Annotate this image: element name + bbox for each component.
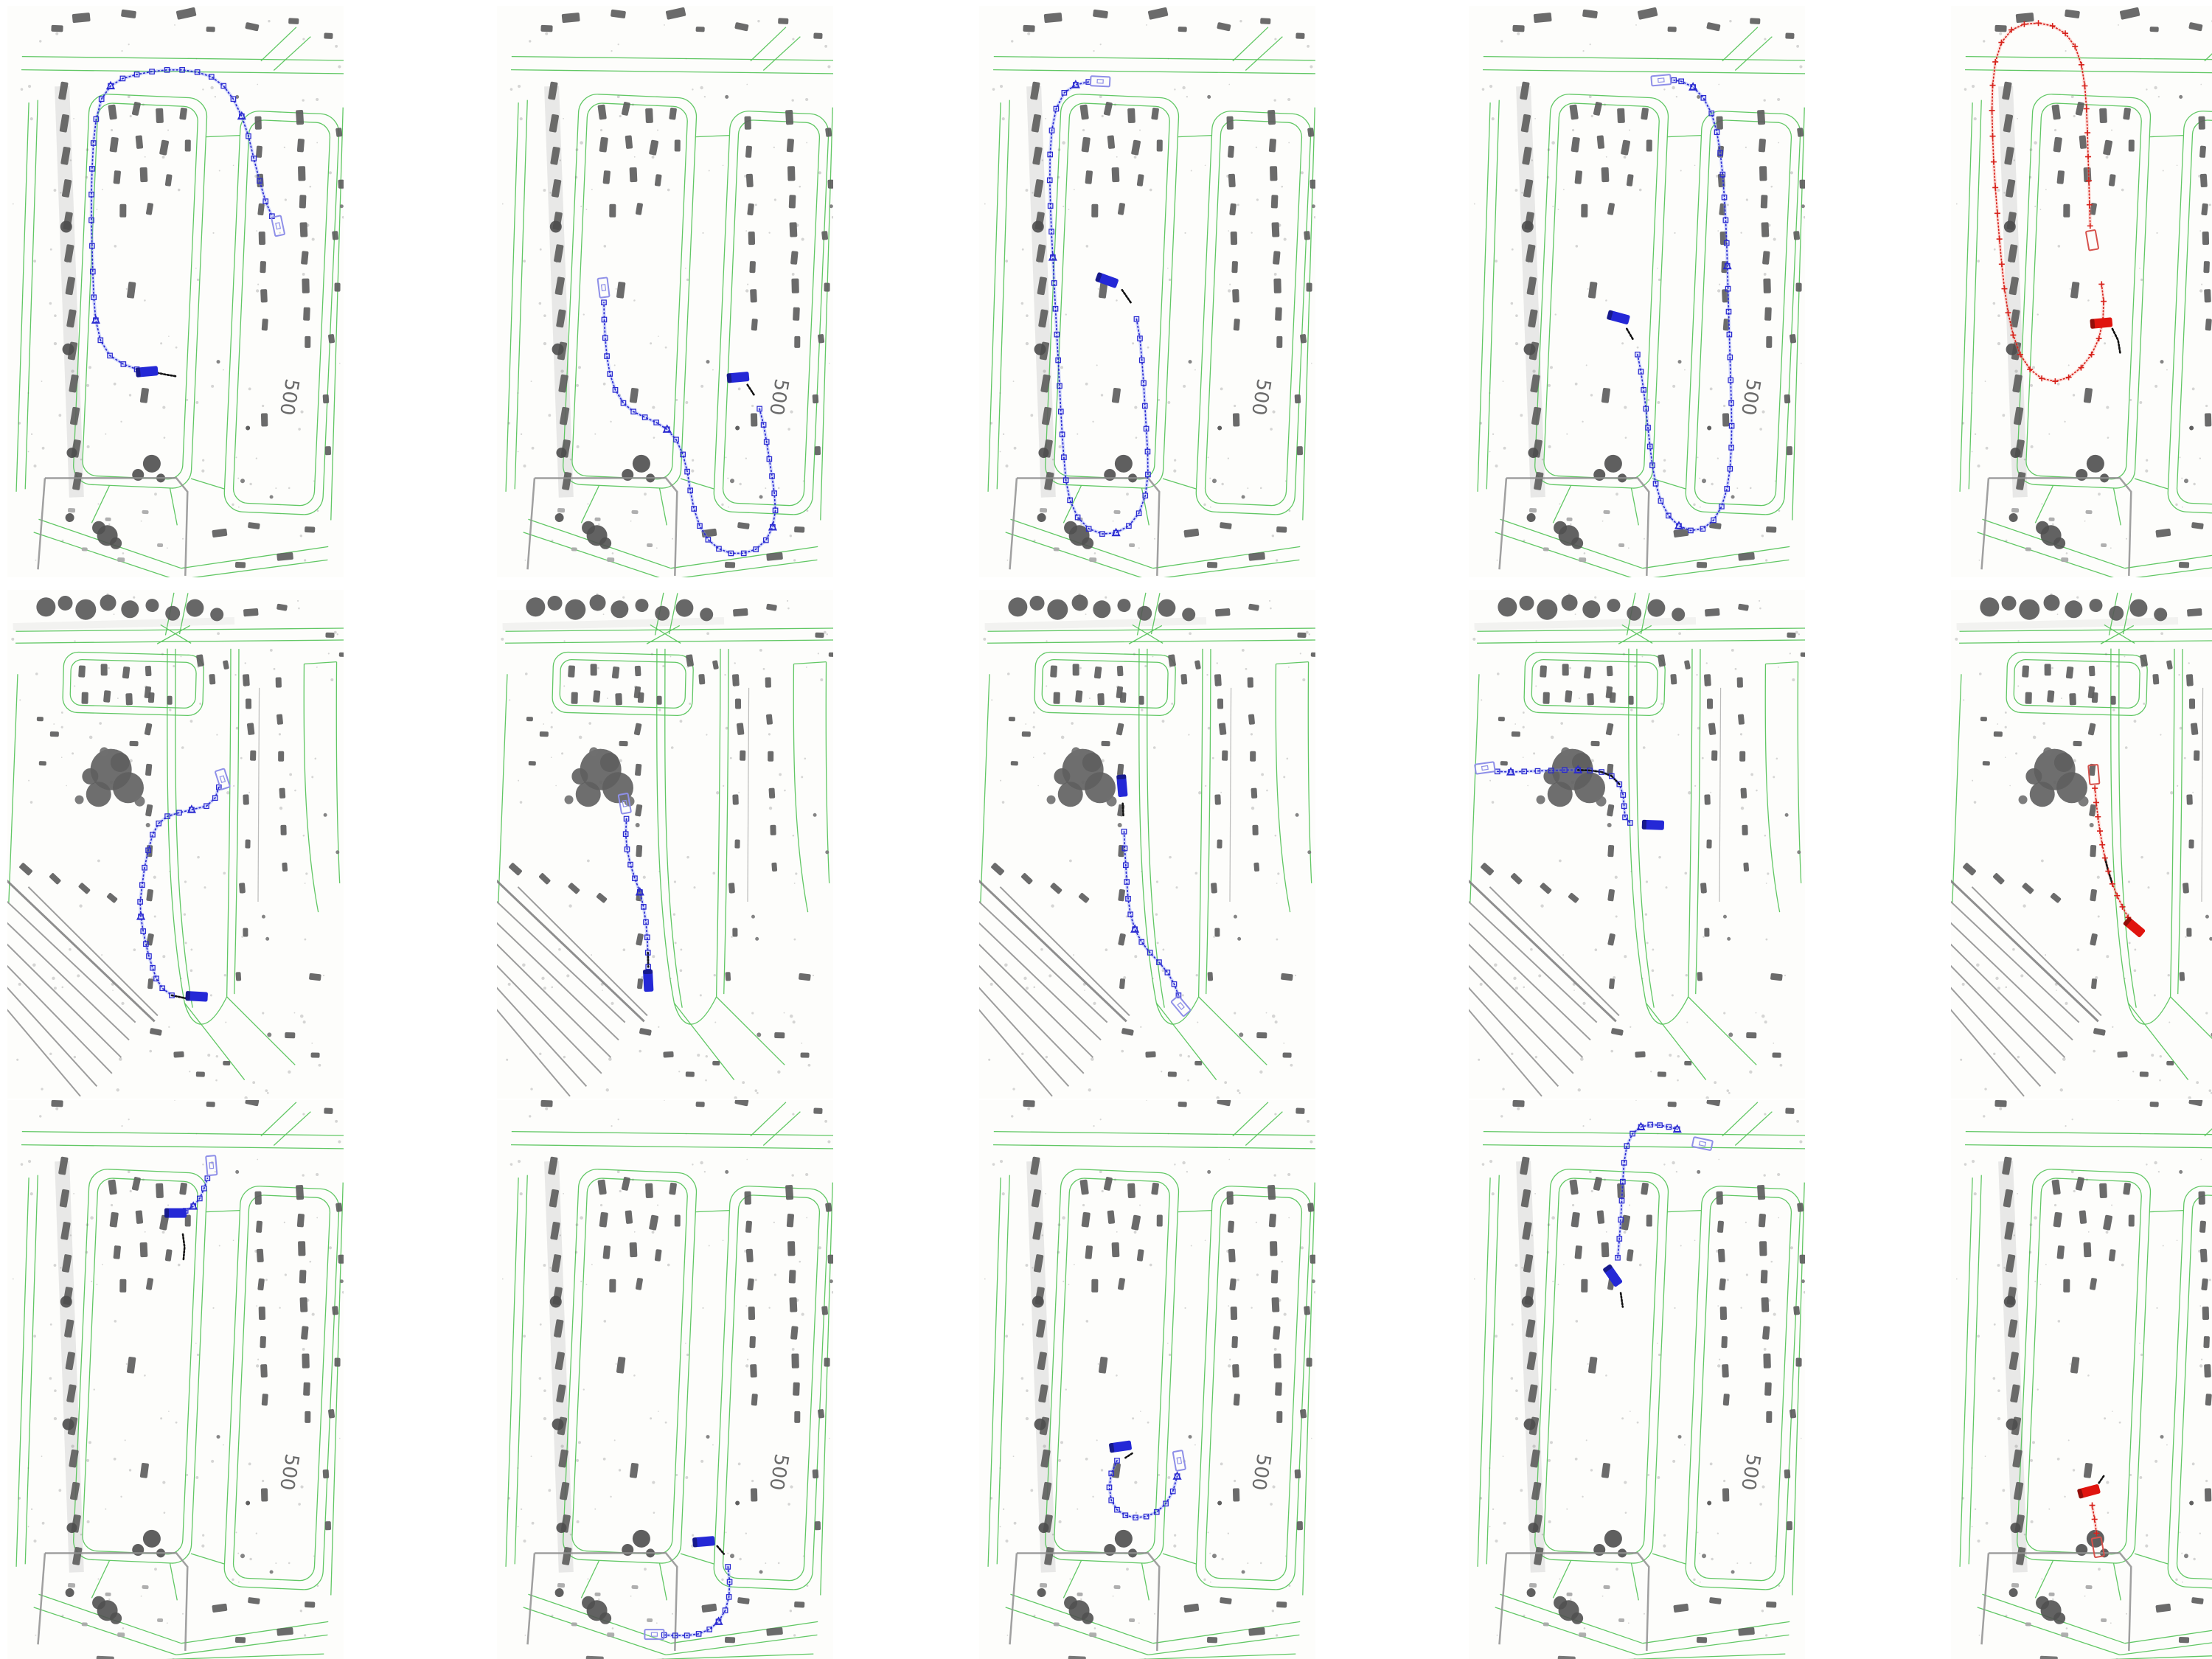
vehicle-rear-shade <box>185 991 190 1001</box>
trajectory-map-panel-r2c5 <box>1951 590 2212 1099</box>
aerial-map-a <box>497 6 833 577</box>
map-canvas-r2c2 <box>497 590 833 1099</box>
trajectory-grid <box>0 0 2212 1659</box>
aerial-map-a <box>7 6 344 577</box>
map-canvas-r3c5 <box>1951 1100 2212 1659</box>
trajectory-map-panel-r1c4 <box>1469 6 1805 577</box>
vehicle-rear-shade <box>164 1208 169 1218</box>
map-canvas-r1c3 <box>979 6 1315 577</box>
trajectory-map-panel-r2c3 <box>979 590 1315 1099</box>
aerial-map-a <box>1469 1100 1805 1659</box>
trajectory-map-panel-r1c3 <box>979 6 1315 577</box>
aerial-map-b <box>1951 590 2212 1099</box>
vehicle-rear-shade <box>726 373 731 383</box>
vehicle-rear-shade <box>643 970 653 975</box>
trajectory-map-panel-r3c1 <box>7 1100 344 1659</box>
map-canvas-r3c2 <box>497 1100 833 1659</box>
vehicle-rear-shade <box>692 1537 698 1547</box>
trajectory-map-panel-r3c4 <box>1469 1100 1805 1659</box>
trajectory-map-panel-r3c3 <box>979 1100 1315 1659</box>
map-canvas-r1c2 <box>497 6 833 577</box>
trajectory-map-panel-r2c1 <box>7 590 344 1099</box>
trajectory-map-panel-r1c5 <box>1951 6 2212 577</box>
trajectory-map-panel-r2c2 <box>497 590 833 1099</box>
aerial-map-b <box>1469 590 1805 1099</box>
vehicle-rear-shade <box>1642 820 1646 829</box>
aerial-map-a <box>979 1100 1315 1659</box>
vehicle-rear-shade <box>2090 319 2095 328</box>
trajectory-map-panel-r3c2 <box>497 1100 833 1659</box>
aerial-map-b <box>7 590 344 1099</box>
aerial-map-b <box>979 590 1315 1099</box>
map-canvas-r3c1 <box>7 1100 344 1659</box>
trajectory-map-panel-r1c1 <box>7 6 344 577</box>
aerial-map-b <box>497 590 833 1099</box>
aerial-map-a <box>1469 6 1805 577</box>
map-canvas-r1c5 <box>1951 6 2212 577</box>
map-canvas-r2c5 <box>1951 590 2212 1099</box>
map-canvas-r1c1 <box>7 6 344 577</box>
trajectory-map-panel-r1c2 <box>497 6 833 577</box>
vehicle-rear-shade <box>1116 774 1126 779</box>
aerial-map-a <box>1951 6 2212 577</box>
map-canvas-r2c1 <box>7 590 344 1099</box>
trajectory-map-panel-r3c5 <box>1951 1100 2212 1659</box>
observed-history <box>1123 804 1124 816</box>
aerial-map-a <box>1951 1100 2212 1659</box>
trajectory-map-panel-r2c4 <box>1469 590 1805 1099</box>
map-canvas-r2c3 <box>979 590 1315 1099</box>
map-canvas-r2c4 <box>1469 590 1805 1099</box>
aerial-map-a <box>7 1100 344 1659</box>
map-canvas-r3c4 <box>1469 1100 1805 1659</box>
aerial-map-a <box>497 1100 833 1659</box>
map-canvas-r3c3 <box>979 1100 1315 1659</box>
map-canvas-r1c4 <box>1469 6 1805 577</box>
vehicle-rear-shade <box>136 367 141 377</box>
